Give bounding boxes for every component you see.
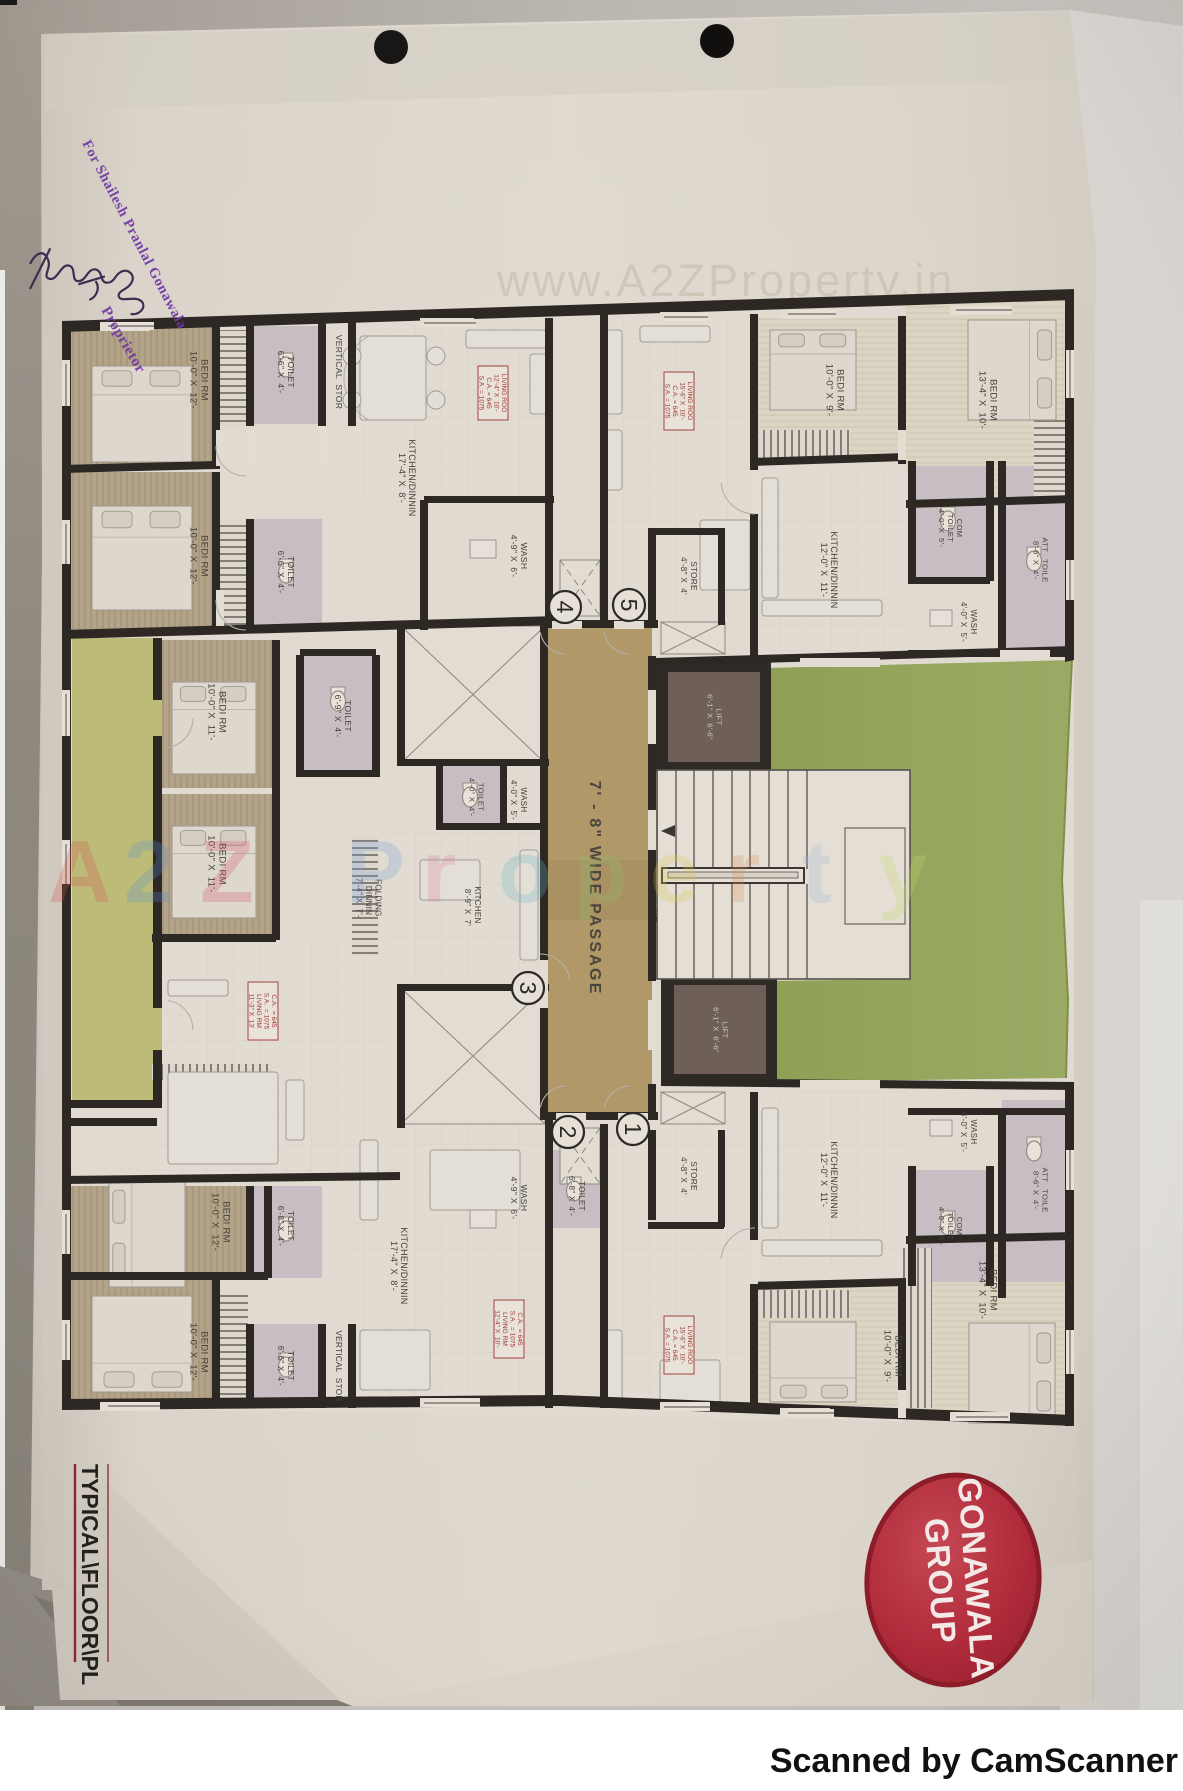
svg-text:1: 1: [620, 1123, 646, 1136]
svg-text:WASH: WASH: [519, 788, 528, 813]
svg-text:ATT TOILE: ATT TOILE: [1041, 538, 1050, 583]
svg-text:6'-1" X 6'-6": 6'-1" X 6'-6": [712, 1007, 721, 1053]
svg-text:COM: COM: [955, 519, 964, 538]
svg-text:6'-6" X 4'-: 6'-6" X 4'-: [276, 351, 286, 394]
svg-text:STORE: STORE: [689, 1161, 698, 1191]
svg-text:2: 2: [555, 1126, 581, 1139]
svg-text:10'-0" X 9'-: 10'-0" X 9'-: [824, 364, 835, 417]
svg-text:BEDI RM: BEDI RM: [217, 691, 228, 733]
svg-text:LIFT: LIFT: [715, 709, 724, 726]
svg-text:10'-0" X 12'-: 10'-0" X 12'-: [210, 1193, 221, 1251]
svg-text:6'-6" X 4'-: 6'-6" X 4'-: [276, 1346, 285, 1386]
svg-text:y: y: [878, 822, 927, 921]
svg-text:o: o: [498, 822, 552, 921]
svg-text:P: P: [346, 822, 405, 921]
svg-text:KITCHEN/DINNIN: KITCHEN/DINNIN: [829, 1141, 839, 1218]
svg-text:4'-9" X 6'-: 4'-9" X 6'-: [509, 1177, 519, 1220]
svg-text:6'-8" X 4'-: 6'-8" X 4'-: [567, 1176, 576, 1216]
svg-text:Z: Z: [200, 822, 254, 921]
svg-text:r: r: [726, 822, 760, 921]
svg-text:BEDI RM: BEDI RM: [893, 1335, 904, 1377]
svg-text:A: A: [48, 822, 112, 921]
svg-text:TOILET: TOILET: [577, 1181, 586, 1211]
svg-text:TOILET: TOILET: [286, 1211, 295, 1241]
svg-text:4: 4: [552, 601, 578, 614]
svg-text:TOILET: TOILET: [946, 514, 955, 542]
svg-text:TOILET: TOILET: [286, 356, 296, 388]
svg-text:2: 2: [124, 822, 173, 921]
svg-text:TOILET: TOILET: [286, 1351, 295, 1381]
svg-text:C.A. = 645: C.A. = 645: [485, 377, 492, 409]
svg-text:BEDI RM: BEDI RM: [835, 369, 846, 411]
svg-text:VERTICAL STOR: VERTICAL STOR: [334, 335, 344, 410]
svg-text:17'-4" X 8'-: 17'-4" X 8'-: [397, 453, 407, 503]
svg-text:10'-0" X 11'-: 10'-0" X 11'-: [206, 683, 217, 741]
svg-text:6'-8" X 4'-: 6'-8" X 4'-: [276, 1206, 285, 1246]
svg-text:12'-0" X 11'-: 12'-0" X 11'-: [819, 543, 829, 598]
svg-text:VERTICAL STOR: VERTICAL STOR: [334, 1330, 343, 1401]
svg-text:4'-0" X 5'-: 4'-0" X 5'-: [937, 509, 946, 547]
svg-text:S.A. = 1075: S.A. = 1075: [664, 384, 671, 419]
svg-text:13'-4" X 10'-: 13'-4" X 10'-: [977, 1261, 988, 1319]
svg-text:12'-4" X 10'-: 12'-4" X 10'-: [494, 1310, 501, 1347]
svg-text:5: 5: [616, 599, 642, 612]
svg-text:TOILET: TOILET: [946, 1212, 955, 1240]
svg-text:11'-3" X 13': 11'-3" X 13': [248, 994, 255, 1029]
svg-text:WASH: WASH: [519, 543, 529, 570]
svg-text:4'-8" X 4': 4'-8" X 4': [679, 1157, 688, 1195]
svg-text:15'-6" X 10'-: 15'-6" X 10'-: [679, 382, 686, 419]
svg-text:C.A. = 645: C.A. = 645: [671, 1329, 678, 1361]
svg-text:S.A. = 1075: S.A. = 1075: [478, 376, 485, 411]
svg-text:TOILET: TOILET: [286, 556, 296, 588]
svg-text:TYPICAL\FLOOR\PL: TYPICAL\FLOOR\PL: [77, 1464, 103, 1685]
svg-text:4'-8" X 4': 4'-8" X 4': [679, 557, 688, 595]
svg-text:BEDI RM: BEDI RM: [199, 1331, 210, 1373]
svg-text:10'-0" X 12'-: 10'-0" X 12'-: [188, 527, 199, 585]
svg-text:6'-6" X 4'-: 6'-6" X 4'-: [276, 551, 286, 594]
svg-text:t: t: [802, 822, 831, 921]
svg-text:4'-0" X 5'-: 4'-0" X 5'-: [937, 1207, 946, 1245]
svg-text:4'-0" X 4'-: 4'-0" X 4'-: [468, 778, 477, 816]
svg-text:KITCHEN/DINNIN: KITCHEN/DINNIN: [829, 531, 839, 608]
svg-text:S.A. = 1075: S.A. = 1075: [509, 1311, 516, 1348]
svg-text:C.A. = 645: C.A. = 645: [671, 385, 678, 417]
svg-text:4'-0" X 5'-: 4'-0" X 5'-: [959, 602, 968, 642]
svg-text:TOILET: TOILET: [477, 783, 486, 811]
svg-text:12'-4" X 10'-: 12'-4" X 10'-: [493, 374, 500, 411]
svg-text:LIVING ROO: LIVING ROO: [500, 374, 507, 412]
svg-text:p: p: [574, 822, 628, 921]
svg-text:10'-0" X 9'-: 10'-0" X 9'-: [882, 1330, 893, 1383]
svg-text:8'-6" X 4'-: 8'-6" X 4'-: [1032, 1171, 1041, 1209]
svg-text:Scanned by CamScanner: Scanned by CamScanner: [770, 1742, 1178, 1780]
svg-text:LIVING ROO: LIVING ROO: [686, 382, 693, 420]
svg-text:ATT TOILE: ATT TOILE: [1041, 1168, 1050, 1213]
svg-text:10'-0" X 12'-: 10'-0" X 12'-: [188, 1323, 199, 1381]
svg-text:KITCHEN/DINNIN: KITCHEN/DINNIN: [407, 439, 417, 516]
svg-text:C.A. = 645: C.A. = 645: [516, 1312, 523, 1346]
svg-text:4'-0" X 5'-: 4'-0" X 5'-: [959, 1112, 968, 1152]
svg-text:8'-6" X 4'-: 8'-6" X 4'-: [1032, 541, 1041, 579]
svg-text:LIVING RM: LIVING RM: [255, 994, 262, 1028]
svg-text:S.A. = 1075: S.A. = 1075: [263, 993, 270, 1030]
svg-text:WASH: WASH: [969, 610, 978, 635]
svg-text:6'-9" X 4'-: 6'-9" X 4'-: [333, 695, 343, 738]
svg-text:TOILET: TOILET: [343, 700, 353, 732]
svg-text:10'-0" X 12'-: 10'-0" X 12'-: [188, 351, 199, 409]
svg-text:13'-4" X 10'-: 13'-4" X 10'-: [977, 371, 988, 429]
svg-text:BEDI RM: BEDI RM: [988, 1269, 999, 1311]
svg-text:STORE: STORE: [689, 561, 698, 591]
svg-text:12'-0" X 11'-: 12'-0" X 11'-: [819, 1153, 829, 1208]
svg-text:LIVING RM: LIVING RM: [501, 1312, 508, 1346]
svg-text:WASH: WASH: [969, 1120, 978, 1145]
svg-text:KITCHEN/DINNIN: KITCHEN/DINNIN: [399, 1227, 409, 1304]
svg-text:8'-9" X 7': 8'-9" X 7': [463, 884, 472, 926]
svg-text:e: e: [650, 822, 699, 921]
svg-text:4'-9" X 6'-: 4'-9" X 6'-: [509, 535, 519, 578]
svg-text:BEDI RM: BEDI RM: [988, 379, 999, 421]
svg-text:r: r: [422, 822, 456, 921]
svg-text:LIVING ROO: LIVING ROO: [686, 1326, 693, 1364]
svg-text:C.A. = 645: C.A. = 645: [270, 994, 277, 1028]
svg-text:BEDI RM: BEDI RM: [221, 1201, 232, 1243]
svg-text:15'-6" X 10'-: 15'-6" X 10'-: [679, 1326, 686, 1363]
svg-text:S.A. = 1075: S.A. = 1075: [664, 1328, 671, 1363]
svg-text:BEDI RM: BEDI RM: [199, 535, 210, 577]
svg-text:BEDI RM: BEDI RM: [199, 359, 210, 401]
svg-text:KITCHEN: KITCHEN: [473, 886, 482, 923]
svg-text:17'-4" X 8'-: 17'-4" X 8'-: [389, 1241, 399, 1291]
svg-text:LIFT: LIFT: [721, 1022, 730, 1039]
svg-text:WASH: WASH: [519, 1185, 529, 1212]
svg-text:4'-0" X 5'-: 4'-0" X 5'-: [509, 780, 518, 820]
svg-text:6'-1" X 6'-6": 6'-1" X 6'-6": [706, 694, 715, 740]
svg-text:3: 3: [515, 982, 541, 995]
svg-text:COM: COM: [955, 1217, 964, 1236]
